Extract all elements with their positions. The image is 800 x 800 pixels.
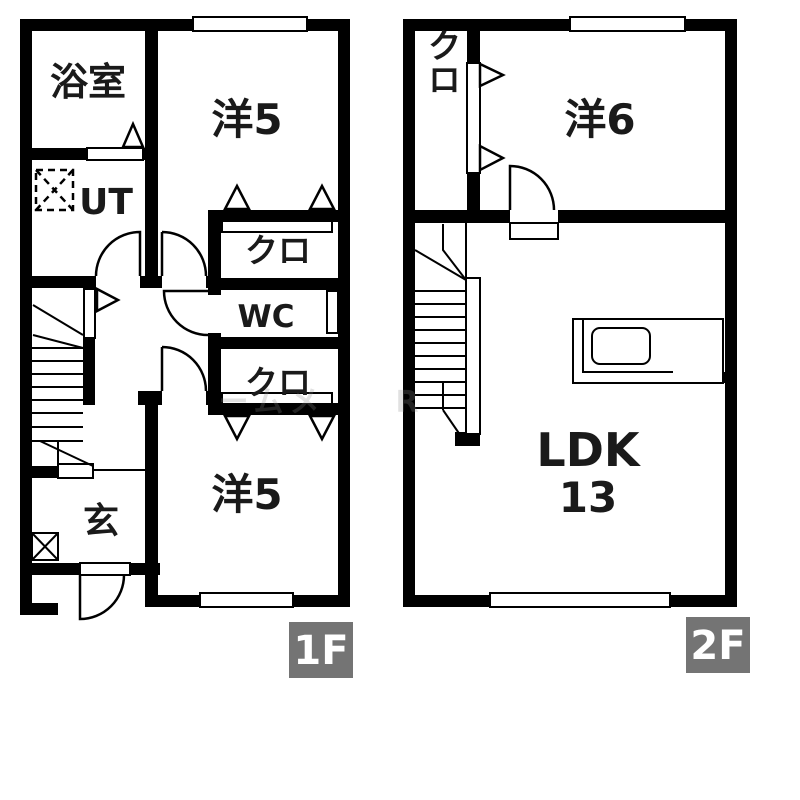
- floor-tag-2f: 2F: [686, 617, 750, 673]
- wc-window: [327, 291, 338, 333]
- walls-1f: [20, 19, 350, 615]
- floor-1f: 浴室 UT 洋5 クロ WC クロ 洋5 玄 1F: [20, 17, 353, 678]
- stair-rail: [84, 289, 95, 338]
- door-arc: [162, 232, 206, 276]
- window-top-2f: [570, 17, 685, 31]
- closet-door-icon: [225, 186, 249, 209]
- door-arc: [96, 232, 140, 276]
- stair-step: [58, 464, 93, 478]
- window-top-1f: [193, 17, 307, 31]
- door-arc: [162, 347, 206, 391]
- washer-pad-icon: [36, 170, 73, 210]
- floor-tag-1f: 1F: [289, 622, 353, 678]
- closet-door-icon: [480, 146, 503, 170]
- door-arc: [164, 291, 208, 335]
- floor-plan-page: 浴室 UT 洋5 クロ WC クロ 洋5 玄 1F: [0, 0, 800, 800]
- watermark-text: ームメ: [218, 385, 325, 420]
- floor-tag-1f-text: 1F: [293, 628, 348, 674]
- room-label-bath: 浴室: [50, 60, 126, 104]
- floor-plan-drawing: 浴室 UT 洋5 クロ WC クロ 洋5 玄 1F: [0, 0, 800, 800]
- room-label-yo5-top: 洋5: [211, 95, 282, 144]
- watermark-text: R: [395, 385, 418, 420]
- floor-tag-2f-text: 2F: [690, 623, 745, 669]
- room-label-closet-2f: クロ: [421, 28, 461, 96]
- window-bottom-2f: [490, 593, 670, 607]
- bath-sliding-door: [87, 148, 143, 160]
- room-label-entrance: 玄: [83, 501, 119, 542]
- closet-2f-door: [467, 63, 480, 173]
- room-label-ldk: LDK: [536, 423, 641, 477]
- entrance-door-arc: [80, 575, 124, 619]
- stair-door-icon: [97, 289, 118, 311]
- watermark: ームメ R: [218, 385, 418, 420]
- room-label-closet-top: クロ: [245, 231, 311, 270]
- room-label-wc: WC: [238, 299, 295, 335]
- room-label-ut: UT: [79, 182, 133, 223]
- entrance-sill: [80, 563, 130, 575]
- kitchen-counter: [573, 319, 723, 383]
- closet-door-icon: [310, 186, 334, 209]
- yo6-door-sill: [510, 223, 558, 239]
- bath-door-icon: [123, 124, 143, 147]
- window-bottom-1f: [200, 593, 293, 607]
- door-arc: [510, 166, 554, 210]
- door-triangles-2f: [480, 64, 503, 170]
- room-label-ldk-size: 13: [559, 473, 617, 522]
- doors-2f: [510, 166, 554, 210]
- stair-rail-2f: [466, 278, 480, 434]
- floor-2f: クロ 洋6 LDK 13 2F: [403, 17, 750, 673]
- stairs-2f: [415, 223, 467, 445]
- kitchen-sink-icon: [592, 328, 650, 364]
- closet-door-icon: [480, 64, 503, 86]
- shoe-box-icon: [32, 533, 58, 560]
- room-label-yo6: 洋6: [564, 95, 635, 144]
- room-label-yo5-bottom: 洋5: [211, 470, 282, 519]
